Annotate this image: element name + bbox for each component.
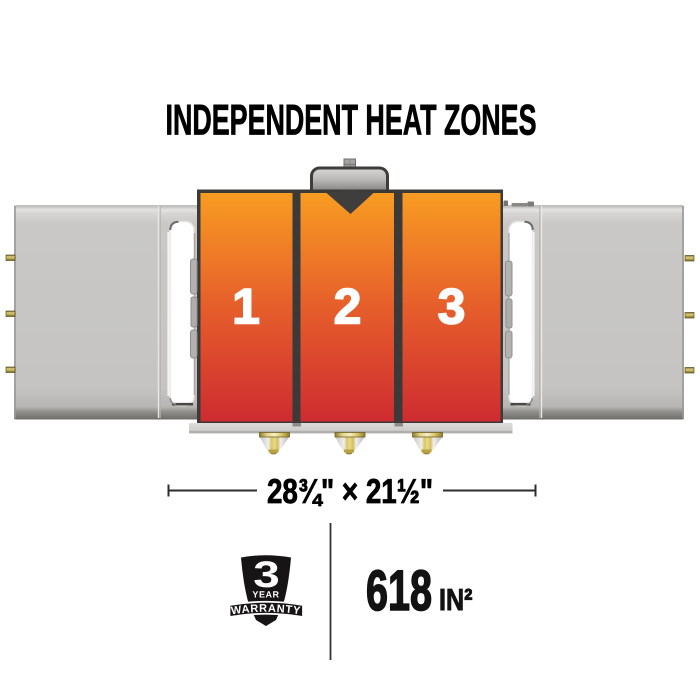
- svg-text:28¾" × 21½": 28¾" × 21½": [267, 473, 433, 511]
- svg-text:INDEPENDENT HEAT ZONES: INDEPENDENT HEAT ZONES: [166, 97, 537, 145]
- svg-text:IN²: IN²: [439, 583, 473, 617]
- svg-text:3: 3: [438, 279, 466, 335]
- svg-text:YEAR: YEAR: [252, 590, 279, 600]
- svg-text:1: 1: [232, 279, 260, 335]
- svg-text:618: 618: [366, 559, 432, 623]
- svg-text:2: 2: [334, 279, 362, 335]
